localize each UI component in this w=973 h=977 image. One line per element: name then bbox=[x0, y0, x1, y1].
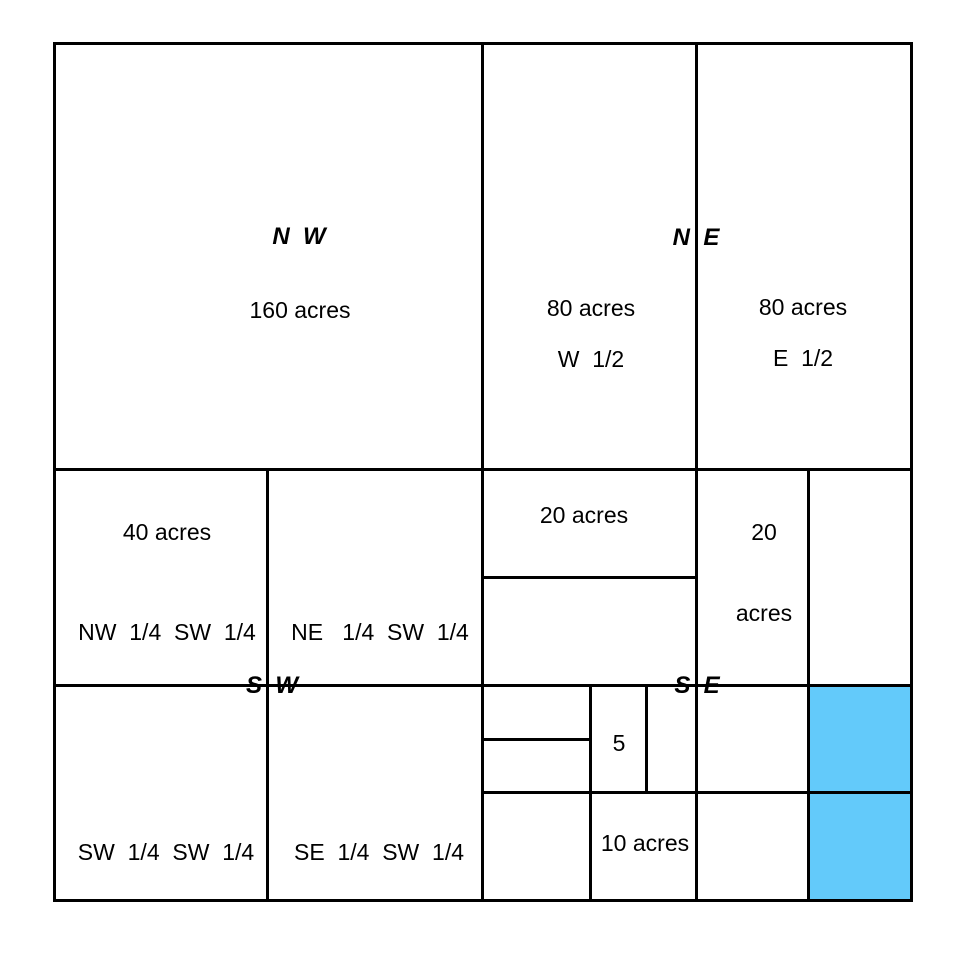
nw-quadrant-label: N W bbox=[272, 223, 325, 251]
ne-west-half-name: W 1/2 bbox=[558, 346, 624, 372]
highlighted-parcel-lower bbox=[810, 794, 910, 899]
se-five-acre-parcel-area: 5 bbox=[613, 730, 626, 756]
divider-se-20acre-horizontal bbox=[483, 576, 698, 579]
se-quadrant-label: S E bbox=[674, 672, 719, 700]
section-border-left bbox=[53, 42, 56, 902]
ne-east-half-area: 80 acres bbox=[759, 294, 847, 320]
section-border-right bbox=[910, 42, 913, 902]
sw-sw-quarter-name: SW 1/4 SW 1/4 bbox=[78, 839, 254, 865]
nw-quadrant-area: 160 acres bbox=[249, 297, 350, 323]
divider-east-vertical bbox=[695, 42, 698, 902]
ne-east-half-name: E 1/2 bbox=[773, 345, 833, 371]
ne-quadrant-label: N E bbox=[673, 224, 720, 252]
se-northwest-parcel-area: 20 acres bbox=[540, 502, 628, 528]
divider-se-small-horizontal bbox=[483, 738, 592, 741]
plss-section-diagram: N W 160 acres N E 80 acres W 1/2 80 acre… bbox=[0, 0, 973, 977]
sw-ne-quarter-name: NE 1/4 SW 1/4 bbox=[291, 619, 469, 645]
se-northeast-parcel-area-line1: 20 bbox=[736, 519, 792, 546]
sw-nw-quarter-area: 40 acres bbox=[123, 519, 211, 545]
se-northeast-parcel-area-line2: acres bbox=[736, 600, 792, 627]
sw-se-quarter-name: SE 1/4 SW 1/4 bbox=[294, 839, 464, 865]
ne-west-half-area: 80 acres bbox=[547, 295, 635, 321]
highlighted-parcel-upper bbox=[810, 687, 910, 791]
divider-quarter-quarter-horizontal bbox=[53, 684, 913, 687]
sw-quadrant-label: S W bbox=[246, 672, 298, 700]
se-ten-acre-parcel-area: 10 acres bbox=[601, 830, 689, 856]
divider-se-south-vertical-2 bbox=[645, 684, 648, 794]
se-northeast-parcel-area: 20 acres bbox=[736, 465, 792, 681]
sw-nw-quarter-name: NW 1/4 SW 1/4 bbox=[78, 619, 256, 645]
divider-center-vertical bbox=[481, 42, 484, 902]
